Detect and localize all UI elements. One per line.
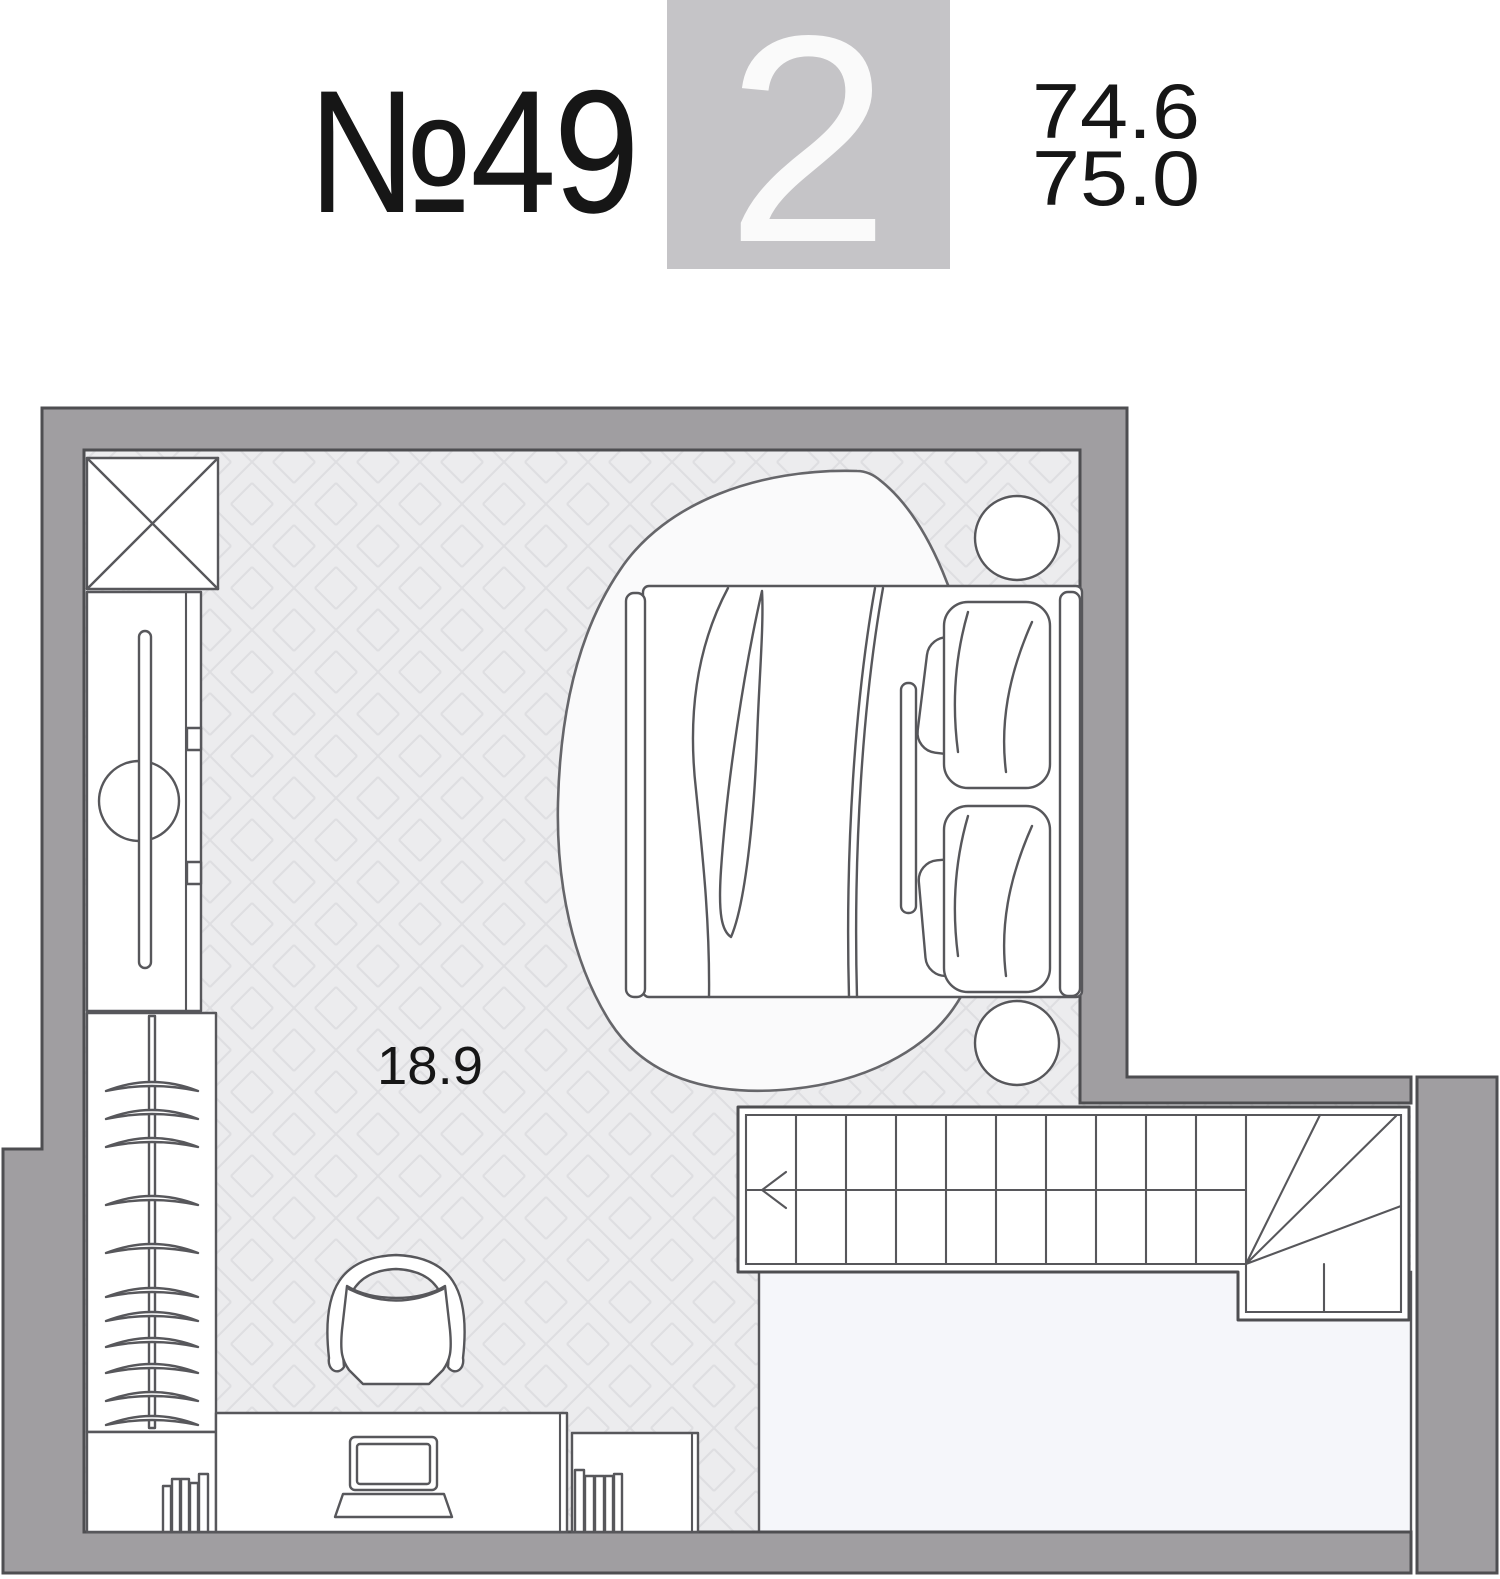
nightstand-top [975,496,1059,580]
laptop-keyboard [335,1494,452,1517]
duvet-bottom-shape [944,806,1050,992]
laptop [335,1437,452,1517]
double-bed [626,586,1082,997]
duvet-top-shape [944,602,1050,788]
duvet-top [944,602,1050,788]
bookshelf-left [87,1432,216,1532]
duvet-bottom [944,806,1050,992]
tv-screen [139,631,151,968]
right-outer-wall [1417,1077,1497,1573]
room-area-label: 18.9 [377,1036,483,1096]
tv-cabinet-tab-1 [187,728,201,750]
rooms-count: 2 [726,0,890,304]
bed-runner [901,683,916,913]
tv-unit [87,592,201,1011]
area-value-2: 75.0 [1032,134,1200,222]
bed-headboard [1060,592,1080,996]
floorplan-card: №49 2 74.6 75.0 18.9 [0,0,1500,1579]
bookshelf-right [572,1433,698,1532]
laptop-screen-inner [357,1444,430,1484]
tv-cabinet-tab-2 [187,862,201,884]
nightstand-bottom [975,1001,1059,1085]
unit-number: №49 [307,55,637,250]
desk [216,1413,567,1532]
crossed-box-shaft-icon [87,458,218,589]
wardrobe [87,1013,216,1432]
bed-footboard [626,593,645,997]
books-right [575,1470,622,1532]
floorplan-canvas: №49 2 74.6 75.0 18.9 [0,0,1500,1579]
